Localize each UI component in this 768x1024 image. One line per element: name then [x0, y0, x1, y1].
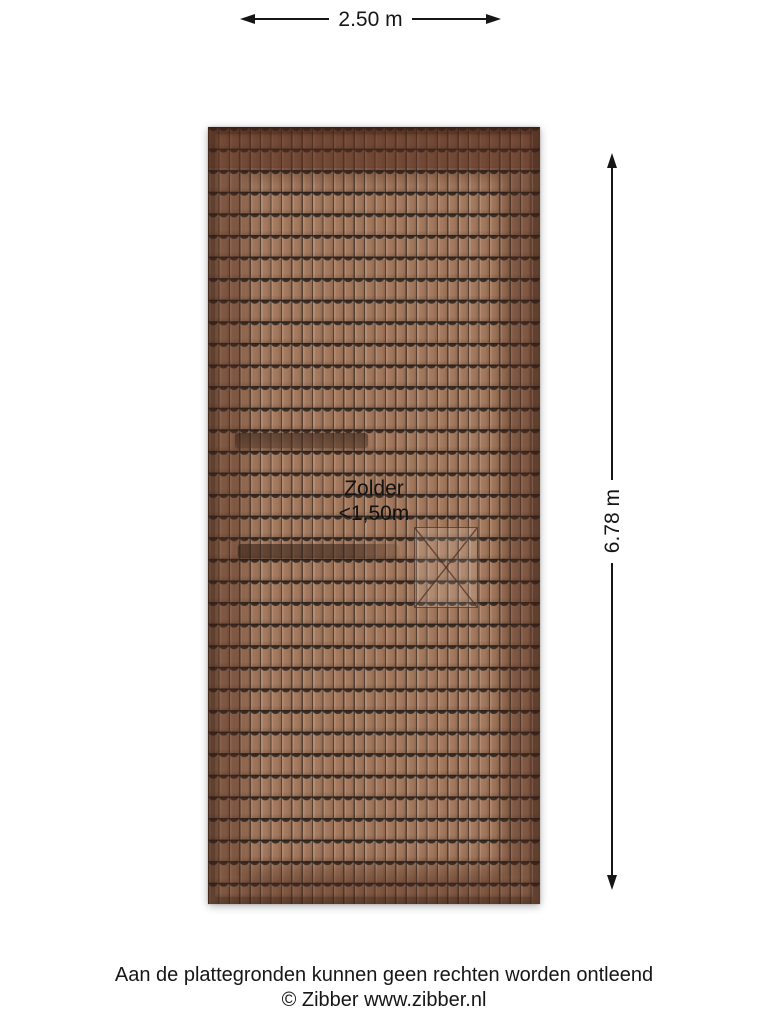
dimension-line — [412, 18, 486, 20]
room-height-note: <1,50m — [208, 501, 540, 526]
room-label-block: Zolder <1,50m — [208, 476, 540, 526]
roof-plan: Zolder <1,50m — [208, 127, 540, 904]
copyright-text: © Zibber www.zibber.nl — [0, 988, 768, 1013]
roof-beam-lower — [238, 544, 398, 558]
disclaimer-text: Aan de plattegronden kunnen geen rechten… — [0, 963, 768, 988]
dimension-line — [611, 563, 613, 875]
arrowhead-right-icon — [486, 14, 501, 24]
skylight-marker — [414, 527, 478, 608]
height-dimension-label: 6.78 m — [602, 489, 623, 553]
skylight-x-icon — [415, 528, 477, 607]
arrowhead-down-icon — [607, 875, 617, 890]
arrowhead-left-icon — [240, 14, 255, 24]
width-dimension: 2.50 m — [240, 9, 501, 29]
floor-plan-page: 2.50 m 6.78 m Zolder <1,50m Aan de — [0, 0, 768, 1024]
dimension-line — [255, 18, 329, 20]
footer: Aan de plattegronden kunnen geen rechten… — [0, 963, 768, 1013]
height-dimension: 6.78 m — [602, 153, 622, 890]
roof-beam-upper — [235, 433, 368, 448]
width-dimension-label: 2.50 m — [338, 9, 402, 30]
room-name: Zolder — [208, 476, 540, 501]
arrowhead-up-icon — [607, 153, 617, 168]
dimension-line — [611, 168, 613, 480]
